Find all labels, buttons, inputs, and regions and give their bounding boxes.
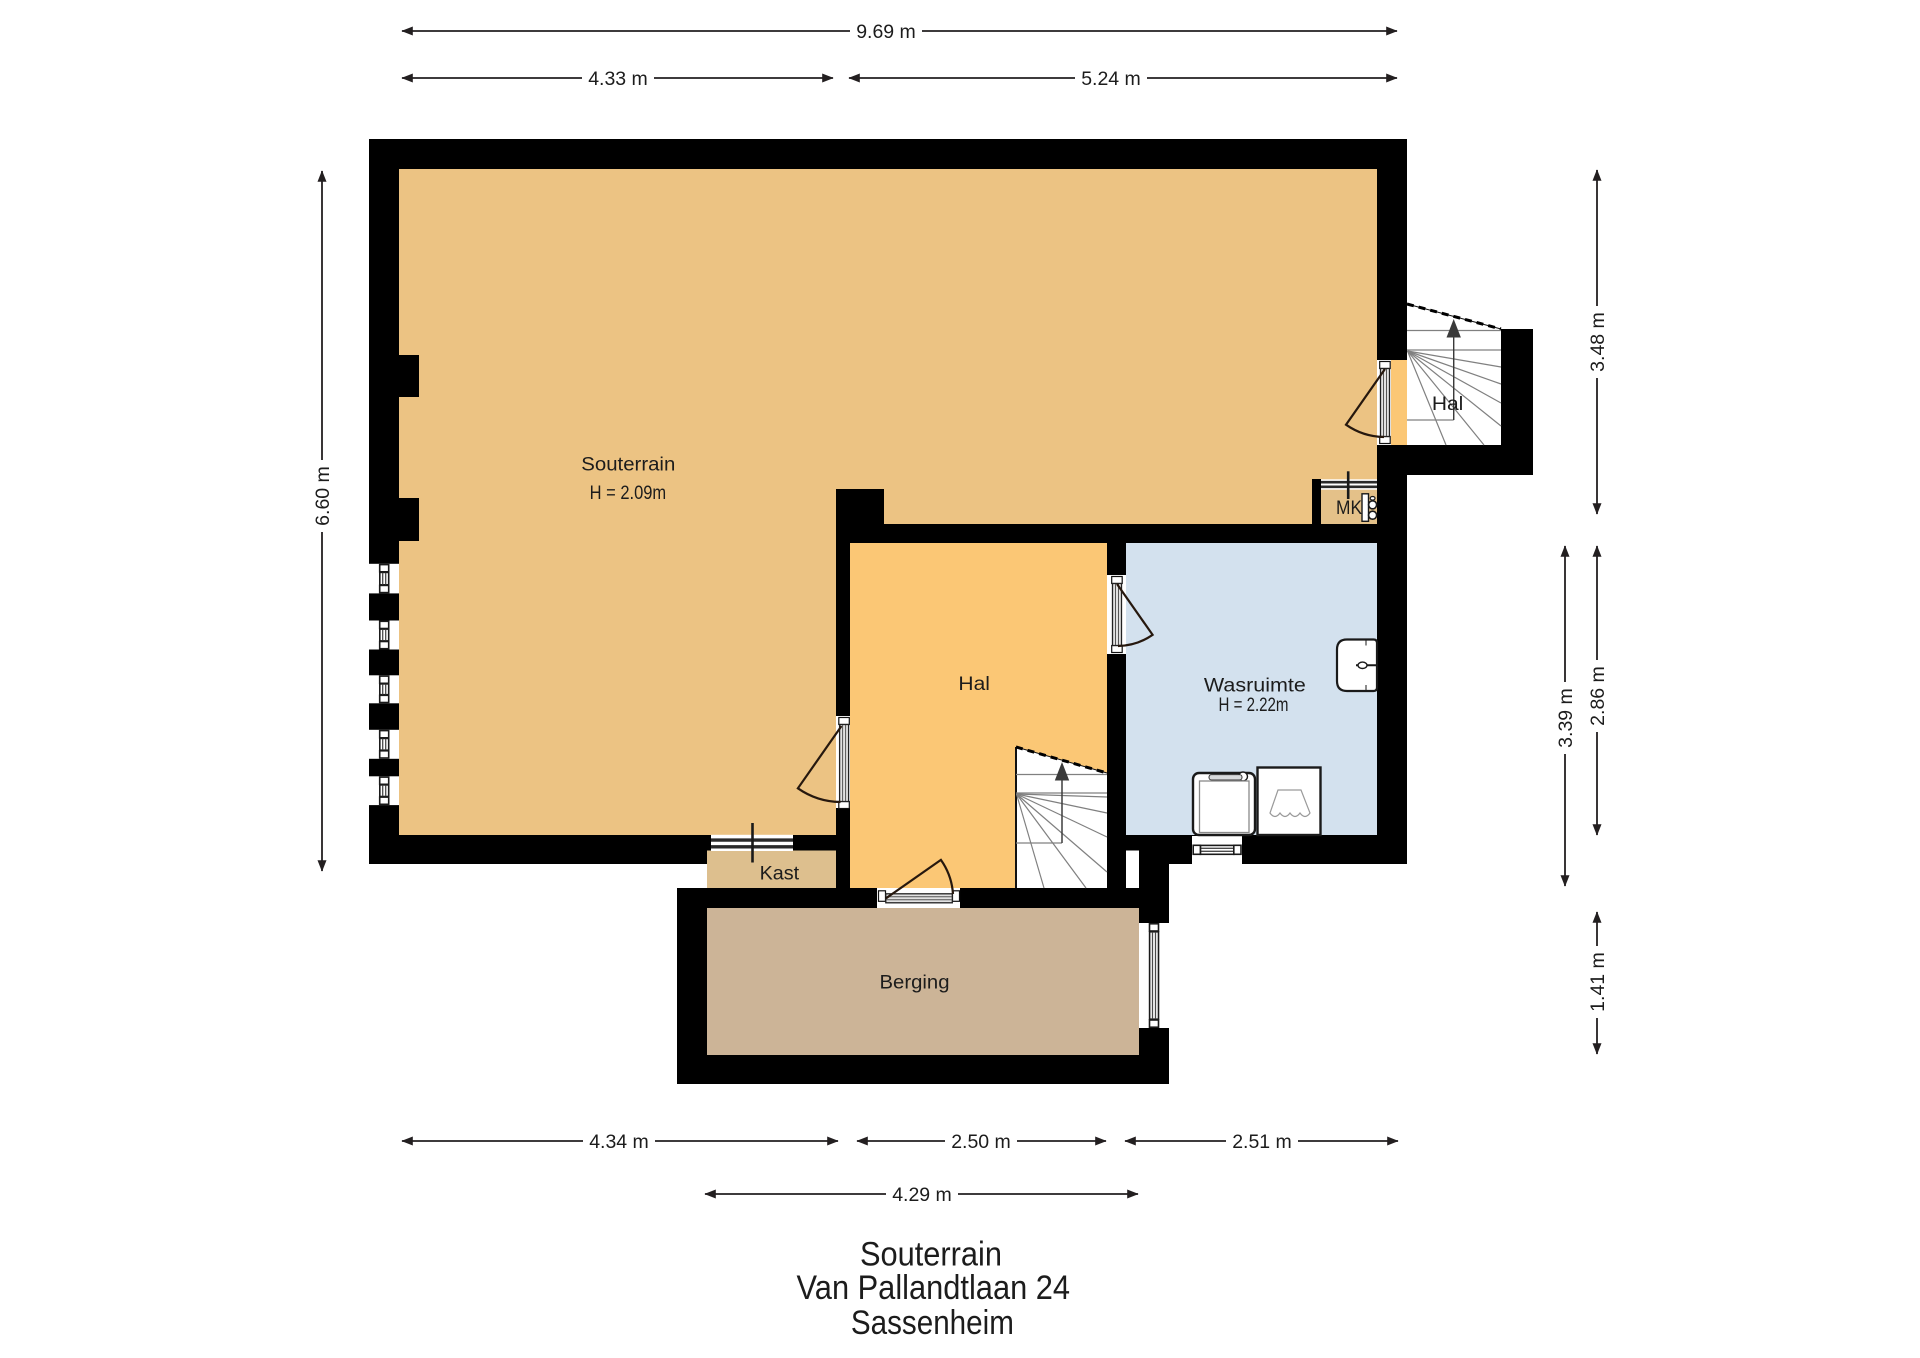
svg-text:Hal: Hal <box>958 674 990 695</box>
svg-text:Berging: Berging <box>880 972 950 993</box>
svg-text:2.51 m: 2.51 m <box>1232 1131 1292 1153</box>
svg-text:Kast: Kast <box>760 863 800 884</box>
svg-text:1.41 m: 1.41 m <box>1587 952 1609 1012</box>
svg-text:Souterrain: Souterrain <box>860 1236 1002 1274</box>
svg-text:4.33 m: 4.33 m <box>588 68 648 90</box>
svg-text:Van Pallandtlaan 24: Van Pallandtlaan 24 <box>797 1269 1071 1307</box>
svg-text:5.24 m: 5.24 m <box>1081 68 1141 90</box>
svg-text:2.86 m: 2.86 m <box>1587 666 1609 726</box>
svg-text:4.29 m: 4.29 m <box>892 1184 952 1206</box>
svg-text:Hal: Hal <box>1432 394 1464 415</box>
svg-text:9.69 m: 9.69 m <box>856 21 916 43</box>
svg-text:3.39 m: 3.39 m <box>1555 688 1577 748</box>
svg-text:H = 2.22m: H = 2.22m <box>1219 695 1289 716</box>
svg-text:Sassenheim: Sassenheim <box>851 1304 1014 1342</box>
svg-text:MK: MK <box>1336 498 1362 519</box>
svg-text:3.48 m: 3.48 m <box>1587 312 1609 372</box>
svg-text:H = 2.09m: H = 2.09m <box>590 483 667 504</box>
svg-text:4.34 m: 4.34 m <box>589 1131 649 1153</box>
svg-text:6.60 m: 6.60 m <box>312 466 334 526</box>
svg-text:Souterrain: Souterrain <box>581 454 675 475</box>
svg-text:Wasruimte: Wasruimte <box>1204 675 1306 696</box>
svg-text:2.50 m: 2.50 m <box>951 1131 1011 1153</box>
